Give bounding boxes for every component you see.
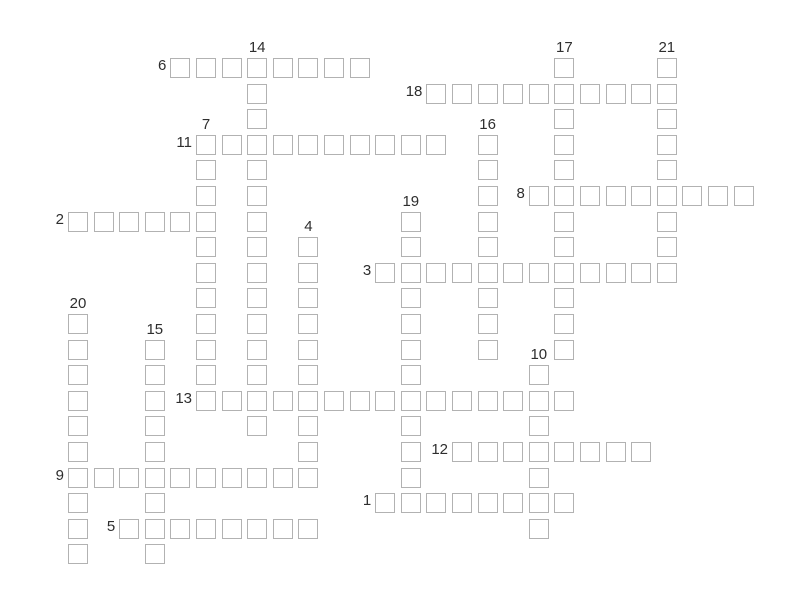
clue-number-10-down: 10 bbox=[519, 346, 559, 364]
crossword-cell-r17-c16[interactable] bbox=[478, 493, 498, 513]
crossword-cell-r7-c13[interactable] bbox=[401, 237, 421, 257]
crossword-cell-r6-c13[interactable] bbox=[401, 212, 421, 232]
crossword-cell-r18-c9[interactable] bbox=[298, 519, 318, 539]
crossword-cell-r12-c9[interactable] bbox=[298, 365, 318, 385]
crossword-cell-r18-c8[interactable] bbox=[273, 519, 293, 539]
clue-number-12-across: 12 bbox=[418, 441, 448, 459]
crossword-cell-r17-c19[interactable] bbox=[554, 493, 574, 513]
clue-number-4-down: 4 bbox=[288, 218, 328, 236]
crossword-cell-r1-c18[interactable] bbox=[529, 84, 549, 104]
crossword-cell-r9-c16[interactable] bbox=[478, 288, 498, 308]
crossword-cell-r16-c6[interactable] bbox=[222, 468, 242, 488]
crossword-cell-r15-c0[interactable] bbox=[68, 442, 88, 462]
crossword-cell-r15-c15[interactable] bbox=[452, 442, 472, 462]
crossword-cell-r3-c13[interactable] bbox=[401, 135, 421, 155]
crossword-cell-r7-c16[interactable] bbox=[478, 237, 498, 257]
crossword-cell-r1-c20[interactable] bbox=[580, 84, 600, 104]
crossword-cell-r16-c18[interactable] bbox=[529, 468, 549, 488]
crossword-cell-r6-c0[interactable] bbox=[68, 212, 88, 232]
crossword-cell-r5-c21[interactable] bbox=[606, 186, 626, 206]
crossword-cell-r3-c14[interactable] bbox=[426, 135, 446, 155]
clue-number-15-down: 15 bbox=[135, 321, 175, 339]
crossword-cell-r13-c11[interactable] bbox=[350, 391, 370, 411]
crossword-cell-r4-c7[interactable] bbox=[247, 160, 267, 180]
clue-number-3-across: 3 bbox=[341, 262, 371, 280]
crossword-cell-r1-c15[interactable] bbox=[452, 84, 472, 104]
crossword-cell-r8-c12[interactable] bbox=[375, 263, 395, 283]
crossword-cell-r15-c20[interactable] bbox=[580, 442, 600, 462]
clue-number-13-across: 13 bbox=[162, 390, 192, 408]
crossword-cell-r15-c3[interactable] bbox=[145, 442, 165, 462]
crossword-cell-r10-c7[interactable] bbox=[247, 314, 267, 334]
crossword-cell-r16-c9[interactable] bbox=[298, 468, 318, 488]
crossword-cell-r18-c18[interactable] bbox=[529, 519, 549, 539]
crossword-cell-r14-c7[interactable] bbox=[247, 416, 267, 436]
crossword-cell-r16-c1[interactable] bbox=[94, 468, 114, 488]
crossword-cell-r0-c11[interactable] bbox=[350, 58, 370, 78]
crossword-cell-r13-c14[interactable] bbox=[426, 391, 446, 411]
crossword-cell-r8-c14[interactable] bbox=[426, 263, 446, 283]
crossword-cell-r16-c7[interactable] bbox=[247, 468, 267, 488]
crossword-cell-r11-c0[interactable] bbox=[68, 340, 88, 360]
crossword-cell-r8-c18[interactable] bbox=[529, 263, 549, 283]
crossword-cell-r8-c19[interactable] bbox=[554, 263, 574, 283]
crossword-cell-r9-c19[interactable] bbox=[554, 288, 574, 308]
crossword-cell-r11-c13[interactable] bbox=[401, 340, 421, 360]
crossword-cell-r11-c7[interactable] bbox=[247, 340, 267, 360]
crossword-cell-r11-c9[interactable] bbox=[298, 340, 318, 360]
crossword-cell-r1-c23[interactable] bbox=[657, 84, 677, 104]
clue-number-7-down: 7 bbox=[186, 116, 226, 134]
crossword-cell-r6-c5[interactable] bbox=[196, 212, 216, 232]
crossword-cell-r19-c3[interactable] bbox=[145, 544, 165, 564]
crossword-cell-r4-c23[interactable] bbox=[657, 160, 677, 180]
crossword-cell-r9-c7[interactable] bbox=[247, 288, 267, 308]
crossword-cell-r19-c0[interactable] bbox=[68, 544, 88, 564]
crossword-cell-r11-c3[interactable] bbox=[145, 340, 165, 360]
clue-number-1-across: 1 bbox=[341, 492, 371, 510]
crossword-cell-r8-c5[interactable] bbox=[196, 263, 216, 283]
crossword-cell-r3-c12[interactable] bbox=[375, 135, 395, 155]
crossword-cell-r10-c5[interactable] bbox=[196, 314, 216, 334]
crossword-cell-r10-c19[interactable] bbox=[554, 314, 574, 334]
crossword-cell-r3-c5[interactable] bbox=[196, 135, 216, 155]
crossword-cell-r0-c19[interactable] bbox=[554, 58, 574, 78]
crossword-cell-r15-c22[interactable] bbox=[631, 442, 651, 462]
crossword-cell-r8-c21[interactable] bbox=[606, 263, 626, 283]
crossword-cell-r16-c2[interactable] bbox=[119, 468, 139, 488]
crossword-cell-r0-c5[interactable] bbox=[196, 58, 216, 78]
crossword-cell-r6-c16[interactable] bbox=[478, 212, 498, 232]
crossword-cell-r18-c4[interactable] bbox=[170, 519, 190, 539]
crossword-cell-r5-c7[interactable] bbox=[247, 186, 267, 206]
crossword-cell-r10-c16[interactable] bbox=[478, 314, 498, 334]
crossword-cell-r0-c9[interactable] bbox=[298, 58, 318, 78]
crossword-cell-r13-c12[interactable] bbox=[375, 391, 395, 411]
crossword-cell-r13-c7[interactable] bbox=[247, 391, 267, 411]
crossword-cell-r14-c0[interactable] bbox=[68, 416, 88, 436]
crossword-cell-r17-c15[interactable] bbox=[452, 493, 472, 513]
crossword-cell-r4-c16[interactable] bbox=[478, 160, 498, 180]
crossword-cell-r0-c8[interactable] bbox=[273, 58, 293, 78]
crossword-cell-r13-c5[interactable] bbox=[196, 391, 216, 411]
crossword-cell-r12-c7[interactable] bbox=[247, 365, 267, 385]
crossword-cell-r9-c9[interactable] bbox=[298, 288, 318, 308]
crossword-cell-r17-c0[interactable] bbox=[68, 493, 88, 513]
clue-number-5-across: 5 bbox=[85, 518, 115, 536]
clue-number-18-across: 18 bbox=[392, 83, 422, 101]
crossword-cell-r16-c4[interactable] bbox=[170, 468, 190, 488]
crossword-cell-r3-c19[interactable] bbox=[554, 135, 574, 155]
crossword-cell-r3-c9[interactable] bbox=[298, 135, 318, 155]
crossword-cell-r11-c16[interactable] bbox=[478, 340, 498, 360]
crossword-cell-r13-c15[interactable] bbox=[452, 391, 472, 411]
clue-number-11-across: 11 bbox=[162, 134, 192, 152]
crossword-cell-r17-c12[interactable] bbox=[375, 493, 395, 513]
crossword-cell-r5-c22[interactable] bbox=[631, 186, 651, 206]
crossword-cell-r3-c6[interactable] bbox=[222, 135, 242, 155]
crossword-cell-r3-c7[interactable] bbox=[247, 135, 267, 155]
crossword-cell-r2-c23[interactable] bbox=[657, 109, 677, 129]
crossword-cell-r17-c17[interactable] bbox=[503, 493, 523, 513]
crossword-cell-r6-c4[interactable] bbox=[170, 212, 190, 232]
crossword-cell-r17-c3[interactable] bbox=[145, 493, 165, 513]
crossword-cell-r0-c4[interactable] bbox=[170, 58, 190, 78]
crossword-cell-r7-c23[interactable] bbox=[657, 237, 677, 257]
crossword-cell-r18-c6[interactable] bbox=[222, 519, 242, 539]
crossword-cell-r16-c8[interactable] bbox=[273, 468, 293, 488]
crossword-cell-r16-c5[interactable] bbox=[196, 468, 216, 488]
crossword-cell-r8-c13[interactable] bbox=[401, 263, 421, 283]
clue-number-21-down: 21 bbox=[647, 39, 687, 57]
crossword-cell-r15-c21[interactable] bbox=[606, 442, 626, 462]
crossword-cell-r0-c7[interactable] bbox=[247, 58, 267, 78]
crossword-cell-r14-c13[interactable] bbox=[401, 416, 421, 436]
clue-number-19-down: 19 bbox=[391, 193, 431, 211]
crossword-cell-r15-c18[interactable] bbox=[529, 442, 549, 462]
crossword-cell-r9-c13[interactable] bbox=[401, 288, 421, 308]
crossword-cell-r5-c26[interactable] bbox=[734, 186, 754, 206]
crossword-cell-r1-c19[interactable] bbox=[554, 84, 574, 104]
crossword-cell-r10-c0[interactable] bbox=[68, 314, 88, 334]
crossword-cell-r12-c5[interactable] bbox=[196, 365, 216, 385]
crossword-cell-r1-c21[interactable] bbox=[606, 84, 626, 104]
crossword-cell-r13-c10[interactable] bbox=[324, 391, 344, 411]
crossword-cell-r13-c18[interactable] bbox=[529, 391, 549, 411]
crossword-cell-r16-c0[interactable] bbox=[68, 468, 88, 488]
crossword-cell-r13-c13[interactable] bbox=[401, 391, 421, 411]
crossword-cell-r18-c5[interactable] bbox=[196, 519, 216, 539]
crossword-cell-r12-c18[interactable] bbox=[529, 365, 549, 385]
crossword-cell-r8-c20[interactable] bbox=[580, 263, 600, 283]
crossword-cell-r10-c13[interactable] bbox=[401, 314, 421, 334]
crossword-cell-r13-c17[interactable] bbox=[503, 391, 523, 411]
crossword-cell-r15-c19[interactable] bbox=[554, 442, 574, 462]
crossword-cell-r6-c2[interactable] bbox=[119, 212, 139, 232]
crossword-cell-r1-c7[interactable] bbox=[247, 84, 267, 104]
crossword-cell-r13-c19[interactable] bbox=[554, 391, 574, 411]
crossword-cell-r3-c16[interactable] bbox=[478, 135, 498, 155]
crossword-cell-r14-c18[interactable] bbox=[529, 416, 549, 436]
crossword-cell-r1-c17[interactable] bbox=[503, 84, 523, 104]
clue-number-14-down: 14 bbox=[237, 39, 277, 57]
crossword-cell-r8-c9[interactable] bbox=[298, 263, 318, 283]
crossword-cell-r15-c9[interactable] bbox=[298, 442, 318, 462]
crossword-cell-r3-c23[interactable] bbox=[657, 135, 677, 155]
clue-number-8-across: 8 bbox=[495, 185, 525, 203]
crossword-cell-r9-c5[interactable] bbox=[196, 288, 216, 308]
crossword-cell-r8-c17[interactable] bbox=[503, 263, 523, 283]
crossword-cell-r5-c23[interactable] bbox=[657, 186, 677, 206]
crossword-cell-r6-c3[interactable] bbox=[145, 212, 165, 232]
crossword-cell-r3-c10[interactable] bbox=[324, 135, 344, 155]
crossword-cell-r0-c23[interactable] bbox=[657, 58, 677, 78]
crossword-cell-r8-c22[interactable] bbox=[631, 263, 651, 283]
crossword-cell-r4-c5[interactable] bbox=[196, 160, 216, 180]
crossword-cell-r1-c22[interactable] bbox=[631, 84, 651, 104]
crossword-cell-r5-c18[interactable] bbox=[529, 186, 549, 206]
crossword-cell-r8-c23[interactable] bbox=[657, 263, 677, 283]
crossword-cell-r16-c3[interactable] bbox=[145, 468, 165, 488]
crossword-cell-r17-c13[interactable] bbox=[401, 493, 421, 513]
clue-number-20-down: 20 bbox=[58, 295, 98, 313]
crossword-cell-r7-c19[interactable] bbox=[554, 237, 574, 257]
crossword-cell-r5-c24[interactable] bbox=[682, 186, 702, 206]
crossword-cell-r15-c17[interactable] bbox=[503, 442, 523, 462]
crossword-cell-r13-c6[interactable] bbox=[222, 391, 242, 411]
crossword-cell-r12-c13[interactable] bbox=[401, 365, 421, 385]
crossword-cell-r5-c25[interactable] bbox=[708, 186, 728, 206]
crossword-cell-r16-c13[interactable] bbox=[401, 468, 421, 488]
crossword-cell-r2-c7[interactable] bbox=[247, 109, 267, 129]
crossword-cell-r7-c7[interactable] bbox=[247, 237, 267, 257]
crossword-cell-r15-c16[interactable] bbox=[478, 442, 498, 462]
crossword-cell-r1-c16[interactable] bbox=[478, 84, 498, 104]
crossword-cell-r18-c3[interactable] bbox=[145, 519, 165, 539]
crossword-cell-r14-c3[interactable] bbox=[145, 416, 165, 436]
crossword-cell-r6-c7[interactable] bbox=[247, 212, 267, 232]
clue-number-16-down: 16 bbox=[468, 116, 508, 134]
crossword-cell-r8-c15[interactable] bbox=[452, 263, 472, 283]
clue-number-17-down: 17 bbox=[544, 39, 584, 57]
crossword-cell-r13-c8[interactable] bbox=[273, 391, 293, 411]
crossword-cell-r5-c5[interactable] bbox=[196, 186, 216, 206]
crossword-cell-r6-c19[interactable] bbox=[554, 212, 574, 232]
crossword-cell-r0-c10[interactable] bbox=[324, 58, 344, 78]
crossword-cell-r18-c2[interactable] bbox=[119, 519, 139, 539]
crossword-cell-r7-c9[interactable] bbox=[298, 237, 318, 257]
crossword-cell-r5-c20[interactable] bbox=[580, 186, 600, 206]
crossword-cell-r2-c19[interactable] bbox=[554, 109, 574, 129]
crossword-cell-r13-c16[interactable] bbox=[478, 391, 498, 411]
clue-number-2-across: 2 bbox=[34, 211, 64, 229]
crossword-cell-r4-c19[interactable] bbox=[554, 160, 574, 180]
crossword-cell-r18-c7[interactable] bbox=[247, 519, 267, 539]
crossword-cell-r5-c19[interactable] bbox=[554, 186, 574, 206]
crossword-cell-r3-c11[interactable] bbox=[350, 135, 370, 155]
crossword-cell-r12-c3[interactable] bbox=[145, 365, 165, 385]
crossword-cell-r14-c9[interactable] bbox=[298, 416, 318, 436]
crossword-cell-r17-c18[interactable] bbox=[529, 493, 549, 513]
crossword-cell-r3-c8[interactable] bbox=[273, 135, 293, 155]
crossword-cell-r13-c9[interactable] bbox=[298, 391, 318, 411]
crossword-cell-r1-c14[interactable] bbox=[426, 84, 446, 104]
crossword-cell-r6-c1[interactable] bbox=[94, 212, 114, 232]
crossword-cell-r8-c7[interactable] bbox=[247, 263, 267, 283]
crossword-cell-r0-c6[interactable] bbox=[222, 58, 242, 78]
crossword-cell-r8-c16[interactable] bbox=[478, 263, 498, 283]
clue-number-6-across: 6 bbox=[136, 57, 166, 75]
crossword-board: 123456789101112131415161718192021 bbox=[0, 0, 800, 600]
crossword-cell-r13-c0[interactable] bbox=[68, 391, 88, 411]
crossword-cell-r11-c5[interactable] bbox=[196, 340, 216, 360]
crossword-cell-r7-c5[interactable] bbox=[196, 237, 216, 257]
clue-number-9-across: 9 bbox=[34, 467, 64, 485]
crossword-cell-r10-c9[interactable] bbox=[298, 314, 318, 334]
crossword-cell-r17-c14[interactable] bbox=[426, 493, 446, 513]
crossword-cell-r12-c0[interactable] bbox=[68, 365, 88, 385]
crossword-cell-r6-c23[interactable] bbox=[657, 212, 677, 232]
